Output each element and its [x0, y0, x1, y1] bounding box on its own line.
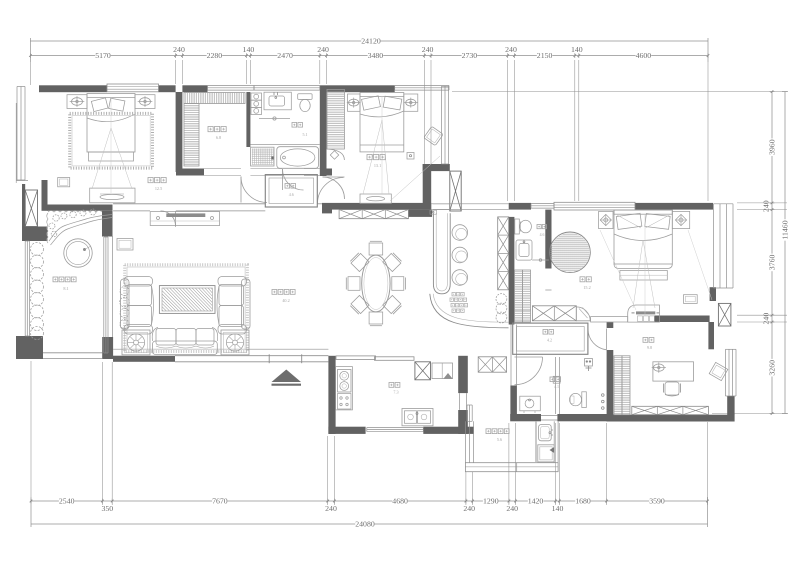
- svg-text:15.2: 15.2: [583, 285, 590, 290]
- svg-text:4600: 4600: [636, 51, 652, 60]
- svg-text:3590: 3590: [649, 497, 665, 506]
- svg-text:4.6: 4.6: [540, 233, 545, 237]
- svg-text:140: 140: [552, 504, 564, 513]
- svg-text:4.6: 4.6: [289, 192, 294, 197]
- svg-text:1290: 1290: [483, 497, 499, 506]
- svg-text:2280: 2280: [207, 51, 223, 60]
- svg-text:1680: 1680: [575, 497, 591, 506]
- svg-text:240: 240: [422, 45, 434, 54]
- svg-text:350: 350: [101, 504, 113, 513]
- svg-text:240: 240: [173, 45, 185, 54]
- svg-text:6.8: 6.8: [216, 135, 221, 140]
- svg-text:9.8: 9.8: [647, 345, 652, 350]
- svg-text:5.6: 5.6: [497, 437, 502, 442]
- svg-text:2470: 2470: [277, 51, 293, 60]
- svg-text:24120: 24120: [361, 37, 381, 46]
- svg-text:2540: 2540: [59, 497, 75, 506]
- svg-text:240: 240: [506, 504, 518, 513]
- svg-text:12.5: 12.5: [155, 186, 162, 191]
- svg-text:8.1: 8.1: [63, 286, 68, 291]
- svg-text:5.1: 5.1: [303, 132, 308, 137]
- svg-text:2150: 2150: [537, 51, 553, 60]
- svg-text:5170: 5170: [95, 51, 111, 60]
- svg-text:3260: 3260: [768, 360, 777, 376]
- svg-text:4.2: 4.2: [547, 338, 552, 343]
- svg-text:3760: 3760: [768, 255, 777, 271]
- svg-text:3960: 3960: [768, 139, 777, 155]
- svg-text:3480: 3480: [368, 51, 384, 60]
- svg-text:7670: 7670: [212, 497, 228, 506]
- svg-text:11460: 11460: [781, 220, 790, 239]
- svg-text:24080: 24080: [355, 520, 375, 529]
- svg-text:2730: 2730: [462, 51, 478, 60]
- svg-text:7.3: 7.3: [393, 390, 398, 395]
- svg-text:240: 240: [505, 45, 517, 54]
- svg-text:4.1: 4.1: [554, 384, 559, 389]
- svg-text:4680: 4680: [392, 497, 408, 506]
- svg-text:140: 140: [571, 45, 583, 54]
- svg-text:40.2: 40.2: [282, 298, 289, 303]
- svg-text:1420: 1420: [528, 497, 544, 506]
- svg-text:13.1: 13.1: [374, 163, 381, 168]
- svg-text:240: 240: [325, 504, 337, 513]
- svg-text:240: 240: [762, 200, 771, 212]
- svg-text:240: 240: [463, 504, 475, 513]
- svg-text:240: 240: [317, 45, 329, 54]
- svg-text:240: 240: [762, 313, 771, 325]
- svg-text:140: 140: [243, 45, 255, 54]
